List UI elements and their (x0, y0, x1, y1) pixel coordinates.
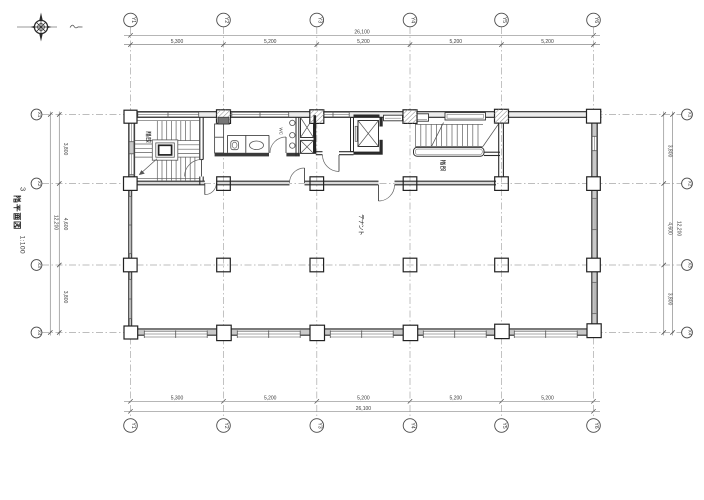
svg-text:5,200: 5,200 (541, 396, 554, 402)
svg-text:Y5: Y5 (501, 17, 507, 23)
svg-text:Y4: Y4 (410, 422, 416, 428)
svg-text:4,600: 4,600 (667, 222, 673, 235)
svg-text:3: 3 (18, 187, 27, 191)
svg-text:5,200: 5,200 (541, 39, 554, 45)
svg-text:Y3: Y3 (316, 17, 322, 23)
svg-text:3,800: 3,800 (62, 143, 68, 156)
svg-text:1:100: 1:100 (18, 236, 25, 255)
svg-text:X3: X3 (37, 262, 42, 268)
svg-text:X1: X1 (37, 112, 42, 118)
svg-text:Y1: Y1 (130, 17, 136, 23)
svg-text:Y2: Y2 (223, 422, 229, 428)
svg-text:3,800: 3,800 (667, 145, 673, 158)
svg-text:X4: X4 (37, 330, 42, 336)
svg-text:3,800: 3,800 (667, 293, 673, 306)
svg-text:X3: X3 (688, 262, 693, 268)
svg-text:12,200: 12,200 (676, 221, 682, 237)
svg-text:X2: X2 (688, 181, 693, 187)
svg-text:5,300: 5,300 (171, 39, 184, 45)
svg-text:5,200: 5,200 (450, 39, 463, 45)
svg-text:5,200: 5,200 (357, 39, 370, 45)
svg-text:4,600: 4,600 (62, 218, 68, 231)
svg-text:5,300: 5,300 (171, 396, 184, 402)
svg-text:X4: X4 (688, 330, 693, 336)
svg-text:Y6: Y6 (593, 422, 599, 428)
svg-text:5,200: 5,200 (450, 396, 463, 402)
svg-text:WC: WC (279, 128, 284, 135)
svg-text:Y6: Y6 (593, 17, 599, 23)
svg-text:Y4: Y4 (410, 17, 416, 23)
svg-text:26,100: 26,100 (356, 406, 372, 412)
svg-text:12,200: 12,200 (53, 215, 59, 231)
svg-text:26,100: 26,100 (354, 30, 370, 36)
svg-text:X2: X2 (37, 181, 42, 187)
svg-text:Y5: Y5 (501, 422, 507, 428)
svg-text:3,800: 3,800 (62, 291, 68, 304)
svg-text:X1: X1 (688, 112, 693, 118)
svg-text:5,200: 5,200 (264, 39, 277, 45)
svg-text:5,200: 5,200 (357, 396, 370, 402)
svg-text:Y1: Y1 (130, 422, 136, 428)
svg-text:Y3: Y3 (316, 422, 322, 428)
svg-text:Y2: Y2 (223, 17, 229, 23)
svg-text:5,200: 5,200 (264, 396, 277, 402)
